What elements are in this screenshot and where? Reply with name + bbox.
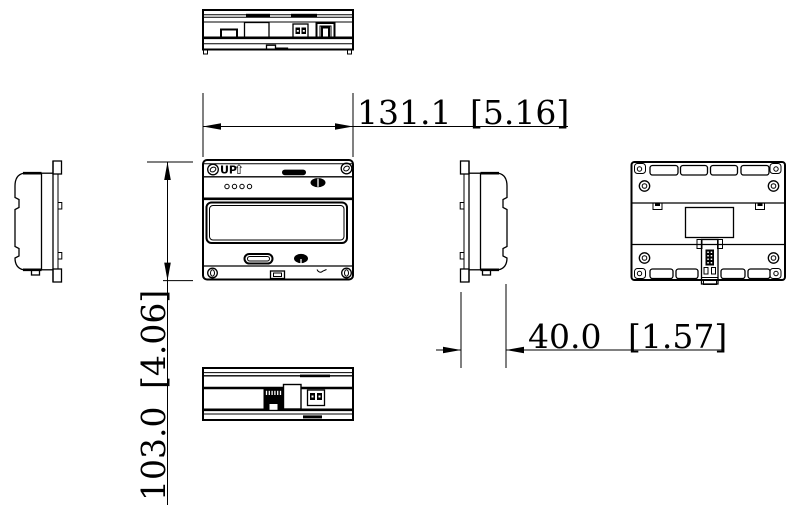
rear-view bbox=[632, 162, 786, 285]
front-view: UP ⇧ bbox=[203, 160, 353, 280]
screw-icon bbox=[341, 163, 352, 174]
bottom-vent-slot bbox=[303, 415, 322, 418]
left-side-view bbox=[15, 161, 62, 282]
din-rail-tab bbox=[461, 161, 470, 174]
body-profile bbox=[15, 173, 24, 270]
din-rail-tab bbox=[53, 161, 62, 174]
top-vent-slot bbox=[291, 14, 317, 18]
label-area bbox=[207, 203, 348, 244]
corner-hook bbox=[635, 269, 646, 279]
bottom-vent-slot bbox=[300, 375, 330, 378]
dimension-height: 103.0 [4.06] bbox=[134, 162, 193, 505]
screw-icon bbox=[208, 268, 218, 278]
ethernet-port-top bbox=[317, 23, 335, 38]
top-button-block bbox=[221, 30, 237, 38]
right-side-view bbox=[460, 161, 507, 282]
screw-icon bbox=[639, 181, 649, 191]
up-arrow-icon: ⇧ bbox=[234, 163, 245, 178]
clip-tab bbox=[653, 203, 662, 210]
screw-cover bbox=[294, 254, 308, 264]
corner-hook bbox=[770, 164, 781, 174]
arrowhead-right bbox=[443, 347, 461, 354]
label-recess bbox=[686, 208, 734, 238]
arrowhead-up bbox=[164, 162, 171, 180]
dim-width-inches: [5.16] bbox=[470, 93, 569, 132]
power-terminal-bottom bbox=[308, 390, 325, 406]
corner-hook bbox=[770, 269, 781, 279]
screw-icon bbox=[208, 164, 219, 175]
din-rail-tab bbox=[461, 269, 470, 282]
dimension-depth: 40.0 [1.57] bbox=[436, 284, 727, 368]
screw-icon bbox=[768, 253, 778, 263]
screw-icon bbox=[768, 181, 778, 191]
arrowhead-left bbox=[203, 123, 221, 130]
arrowhead-left bbox=[506, 347, 524, 354]
power-terminal-top bbox=[293, 24, 308, 38]
bottom-view bbox=[203, 368, 353, 420]
vent-slots-top bbox=[650, 166, 769, 176]
body-profile bbox=[499, 173, 508, 270]
led-indicators bbox=[225, 184, 252, 188]
rail-hook bbox=[58, 253, 62, 260]
corner-hook bbox=[635, 164, 646, 174]
top-vent-slot bbox=[246, 14, 270, 18]
dimension-drawing: UP ⇧ bbox=[0, 0, 795, 513]
reset-button bbox=[311, 178, 326, 187]
arrowhead-right bbox=[335, 123, 353, 130]
dim-width-mm: 131.1 bbox=[357, 93, 451, 132]
din-rail-tab bbox=[53, 269, 62, 282]
dim-depth-mm: 40.0 bbox=[528, 317, 601, 356]
screw-icon bbox=[639, 253, 649, 263]
din-rail-clip bbox=[697, 240, 723, 285]
dim-height-inches: [4.06] bbox=[134, 290, 173, 389]
bottom-port bbox=[271, 271, 285, 279]
slot-opening bbox=[245, 254, 273, 264]
screw-icon bbox=[342, 268, 352, 278]
rail-hook bbox=[460, 203, 464, 210]
top-view bbox=[203, 10, 353, 54]
top-connector-housing bbox=[245, 23, 270, 38]
dim-height-mm: 103.0 bbox=[134, 407, 173, 501]
clip-lever-mark bbox=[317, 270, 327, 273]
arrowhead-down bbox=[164, 263, 171, 281]
rail-hook bbox=[460, 253, 464, 260]
bottom-notch bbox=[284, 385, 302, 410]
ethernet-port-bottom bbox=[264, 389, 284, 410]
clip-tab bbox=[756, 203, 765, 210]
dim-depth-inches: [1.57] bbox=[628, 317, 727, 356]
rail-hook bbox=[58, 203, 62, 210]
top-slot bbox=[282, 170, 306, 176]
dimension-width: 131.1 [5.16] bbox=[203, 93, 569, 157]
